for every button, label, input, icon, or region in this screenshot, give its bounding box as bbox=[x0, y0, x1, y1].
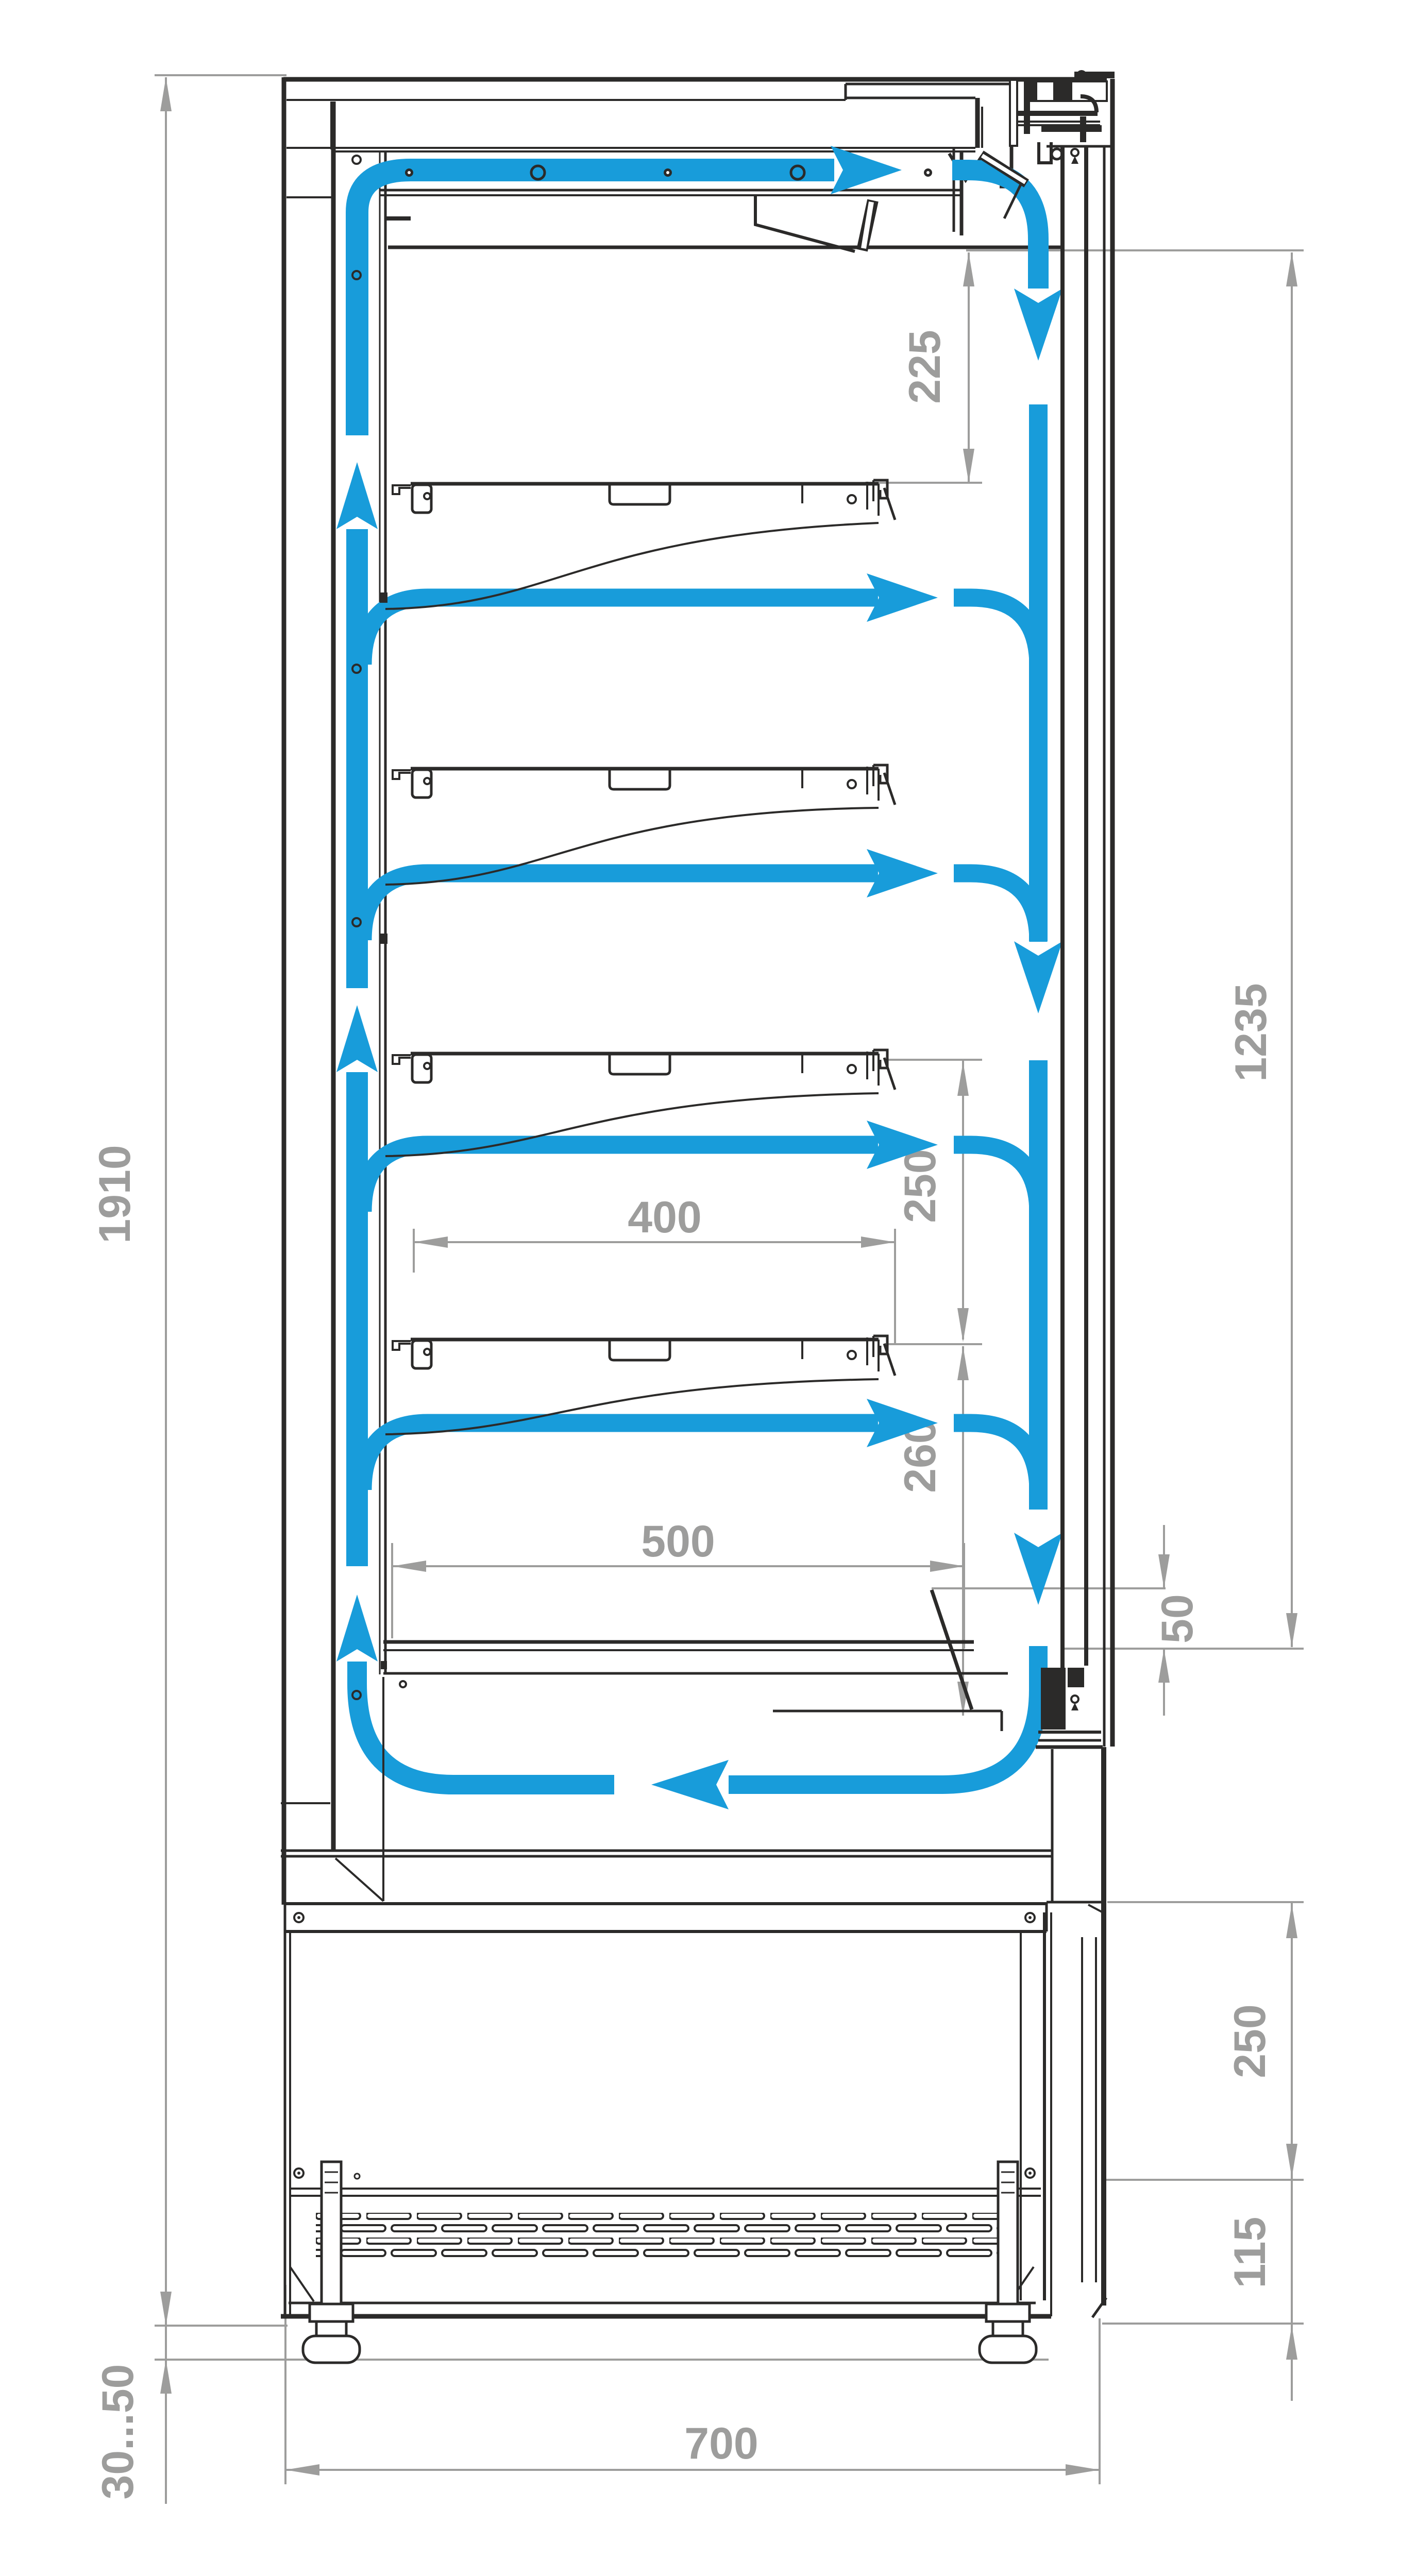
svg-text:115: 115 bbox=[1225, 2217, 1275, 2289]
svg-text:250: 250 bbox=[896, 1149, 945, 1223]
svg-text:225: 225 bbox=[900, 330, 950, 404]
svg-text:1235: 1235 bbox=[1226, 983, 1276, 1081]
svg-text:400: 400 bbox=[628, 1193, 702, 1242]
svg-text:1910: 1910 bbox=[90, 1145, 140, 1243]
svg-text:50: 50 bbox=[1153, 1594, 1202, 1643]
svg-text:30...50: 30...50 bbox=[93, 2364, 143, 2500]
svg-text:250: 250 bbox=[1225, 2004, 1275, 2078]
svg-text:700: 700 bbox=[684, 2419, 758, 2468]
svg-text:500: 500 bbox=[641, 1517, 715, 1566]
